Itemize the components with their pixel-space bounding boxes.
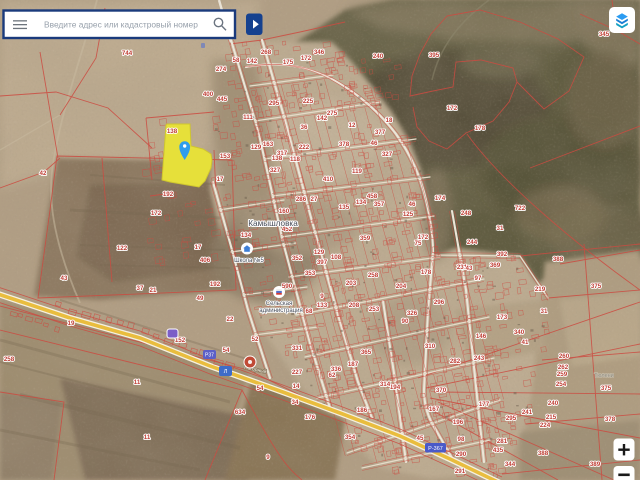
svg-text:192: 192 (163, 191, 174, 198)
svg-text:357: 357 (374, 201, 385, 208)
svg-text:240: 240 (373, 53, 384, 60)
svg-text:186: 186 (357, 407, 368, 414)
svg-text:75: 75 (415, 240, 422, 247)
svg-text:Р37: Р37 (205, 353, 214, 359)
svg-text:43: 43 (61, 275, 68, 282)
svg-text:331: 331 (292, 345, 303, 352)
svg-text:400: 400 (203, 91, 214, 98)
svg-text:153: 153 (220, 153, 231, 160)
svg-text:172: 172 (151, 210, 162, 217)
svg-text:134: 134 (241, 232, 252, 239)
svg-text:389: 389 (590, 461, 601, 468)
svg-text:344: 344 (505, 461, 516, 468)
svg-text:Тюлени: Тюлени (594, 373, 614, 379)
svg-text:397: 397 (317, 259, 328, 266)
svg-text:138: 138 (167, 128, 178, 135)
svg-text:327: 327 (270, 167, 281, 174)
svg-text:9: 9 (320, 293, 324, 300)
svg-text:Л: Л (224, 369, 228, 375)
svg-text:327: 327 (382, 151, 393, 158)
svg-text:43: 43 (466, 265, 473, 272)
svg-text:42: 42 (40, 170, 47, 177)
svg-text:258: 258 (368, 272, 379, 279)
svg-text:435: 435 (493, 447, 504, 454)
svg-text:274: 274 (216, 66, 227, 73)
svg-text:310: 310 (425, 343, 436, 350)
svg-text:19: 19 (68, 320, 75, 327)
svg-text:295: 295 (506, 415, 517, 422)
svg-text:46: 46 (371, 140, 378, 147)
svg-text:388: 388 (553, 256, 564, 263)
svg-text:160: 160 (279, 208, 290, 215)
svg-text:54: 54 (223, 347, 230, 354)
svg-text:346: 346 (314, 49, 325, 56)
svg-text:Введите адрес или кадастровый: Введите адрес или кадастровый номер (44, 20, 198, 30)
svg-text:445: 445 (217, 96, 228, 103)
svg-text:282: 282 (450, 358, 461, 365)
svg-text:163: 163 (263, 141, 274, 148)
svg-text:290: 290 (456, 451, 467, 458)
svg-text:90: 90 (402, 318, 409, 325)
svg-text:177: 177 (479, 401, 490, 408)
svg-text:254: 254 (556, 381, 567, 388)
svg-text:34: 34 (292, 399, 299, 406)
svg-text:174: 174 (435, 195, 446, 202)
svg-text:11: 11 (134, 379, 141, 386)
svg-text:192: 192 (210, 281, 221, 288)
svg-text:208: 208 (349, 302, 360, 309)
svg-text:49: 49 (197, 295, 204, 302)
svg-text:222: 222 (299, 144, 310, 151)
svg-text:378: 378 (339, 141, 350, 148)
svg-text:248: 248 (461, 210, 472, 217)
svg-text:314: 314 (380, 381, 391, 388)
svg-text:Сельская: Сельская (266, 301, 292, 307)
svg-text:377: 377 (375, 129, 386, 136)
svg-text:22: 22 (227, 316, 234, 323)
svg-text:98: 98 (458, 436, 465, 443)
svg-text:215: 215 (546, 414, 557, 421)
svg-text:196: 196 (453, 419, 464, 426)
svg-text:133: 133 (317, 302, 328, 309)
svg-text:392: 392 (497, 251, 508, 258)
svg-text:45: 45 (417, 435, 424, 442)
svg-text:295: 295 (269, 100, 280, 107)
svg-text:178: 178 (475, 125, 486, 132)
svg-text:241: 241 (522, 409, 533, 416)
svg-text:388: 388 (538, 450, 549, 457)
svg-text:129: 129 (314, 249, 325, 256)
svg-text:240: 240 (548, 400, 559, 407)
svg-text:243: 243 (474, 355, 485, 362)
svg-text:326: 326 (407, 310, 418, 317)
svg-text:167: 167 (429, 406, 440, 413)
svg-text:108: 108 (331, 254, 342, 261)
svg-text:41: 41 (522, 339, 529, 346)
svg-text:134: 134 (356, 199, 367, 206)
svg-text:340: 340 (514, 329, 525, 336)
svg-text:204: 204 (396, 283, 407, 290)
svg-text:135: 135 (339, 204, 350, 211)
svg-text:259: 259 (557, 371, 568, 378)
svg-text:253: 253 (369, 306, 380, 313)
svg-text:52: 52 (252, 336, 259, 343)
svg-text:359: 359 (360, 235, 371, 242)
svg-text:395: 395 (429, 52, 440, 59)
svg-text:722: 722 (515, 205, 526, 212)
svg-text:219: 219 (535, 286, 546, 293)
svg-text:406: 406 (200, 257, 211, 264)
svg-text:21: 21 (150, 287, 157, 294)
svg-text:296: 296 (434, 299, 445, 306)
svg-text:187: 187 (348, 361, 359, 368)
svg-text:172: 172 (447, 105, 458, 112)
svg-text:12: 12 (349, 122, 356, 129)
svg-text:176: 176 (305, 414, 316, 421)
svg-text:224: 224 (540, 422, 551, 429)
svg-text:458: 458 (367, 193, 378, 200)
svg-text:17: 17 (217, 176, 224, 183)
svg-text:9: 9 (266, 454, 270, 461)
svg-text:370: 370 (436, 387, 447, 394)
svg-text:111: 111 (243, 114, 253, 121)
svg-text:194: 194 (390, 384, 401, 391)
svg-text:14: 14 (293, 383, 300, 390)
svg-text:58: 58 (233, 57, 240, 64)
svg-text:97: 97 (475, 275, 482, 282)
svg-text:178: 178 (421, 269, 432, 276)
svg-text:353: 353 (305, 270, 316, 277)
svg-text:410: 410 (323, 176, 334, 183)
svg-text:203: 203 (346, 280, 357, 287)
svg-text:291: 291 (455, 468, 466, 475)
svg-text:122: 122 (117, 245, 128, 252)
svg-text:369: 369 (490, 262, 501, 269)
svg-text:258: 258 (4, 356, 15, 363)
svg-text:54: 54 (257, 385, 264, 392)
svg-text:68: 68 (306, 308, 313, 315)
svg-text:634: 634 (235, 409, 246, 416)
svg-text:администрация: администрация (259, 308, 302, 314)
svg-text:172: 172 (301, 55, 312, 62)
svg-text:173: 173 (497, 314, 508, 321)
svg-text:119: 119 (352, 168, 363, 175)
svg-text:378: 378 (605, 416, 616, 423)
svg-text:260: 260 (559, 353, 570, 360)
svg-text:62: 62 (329, 372, 336, 379)
svg-text:138: 138 (272, 155, 283, 162)
svg-text:36: 36 (301, 124, 308, 131)
svg-text:31: 31 (541, 308, 548, 315)
svg-text:227: 227 (292, 369, 303, 376)
svg-text:225: 225 (303, 98, 314, 105)
svg-text:365: 365 (361, 349, 372, 356)
svg-text:Школа №5: Школа №5 (234, 257, 264, 264)
svg-text:17: 17 (195, 244, 202, 251)
svg-text:354: 354 (345, 434, 356, 441)
svg-text:11: 11 (144, 434, 151, 441)
svg-text:590: 590 (282, 283, 293, 290)
svg-text:345: 345 (599, 31, 610, 38)
svg-text:268: 268 (261, 49, 272, 56)
svg-text:129: 129 (251, 144, 262, 151)
svg-text:244: 244 (467, 239, 478, 246)
svg-text:146: 146 (476, 333, 487, 340)
svg-text:31: 31 (497, 225, 504, 232)
svg-text:37: 37 (137, 285, 144, 292)
svg-text:375: 375 (601, 385, 612, 392)
svg-text:275: 275 (327, 110, 338, 117)
svg-text:Камышловка: Камышловка (248, 219, 298, 228)
svg-text:744: 744 (122, 50, 133, 57)
svg-text:118: 118 (290, 156, 301, 163)
svg-text:352: 352 (292, 255, 303, 262)
svg-text:125: 125 (403, 211, 414, 218)
svg-text:175: 175 (283, 59, 294, 66)
svg-text:Р-367: Р-367 (428, 446, 443, 452)
svg-text:27: 27 (311, 196, 318, 203)
svg-text:18: 18 (386, 117, 393, 124)
svg-text:286: 286 (296, 196, 307, 203)
svg-text:46: 46 (409, 201, 416, 208)
svg-text:281: 281 (497, 438, 508, 445)
svg-text:142: 142 (247, 58, 258, 65)
svg-text:375: 375 (591, 283, 602, 290)
svg-text:262: 262 (558, 364, 569, 371)
